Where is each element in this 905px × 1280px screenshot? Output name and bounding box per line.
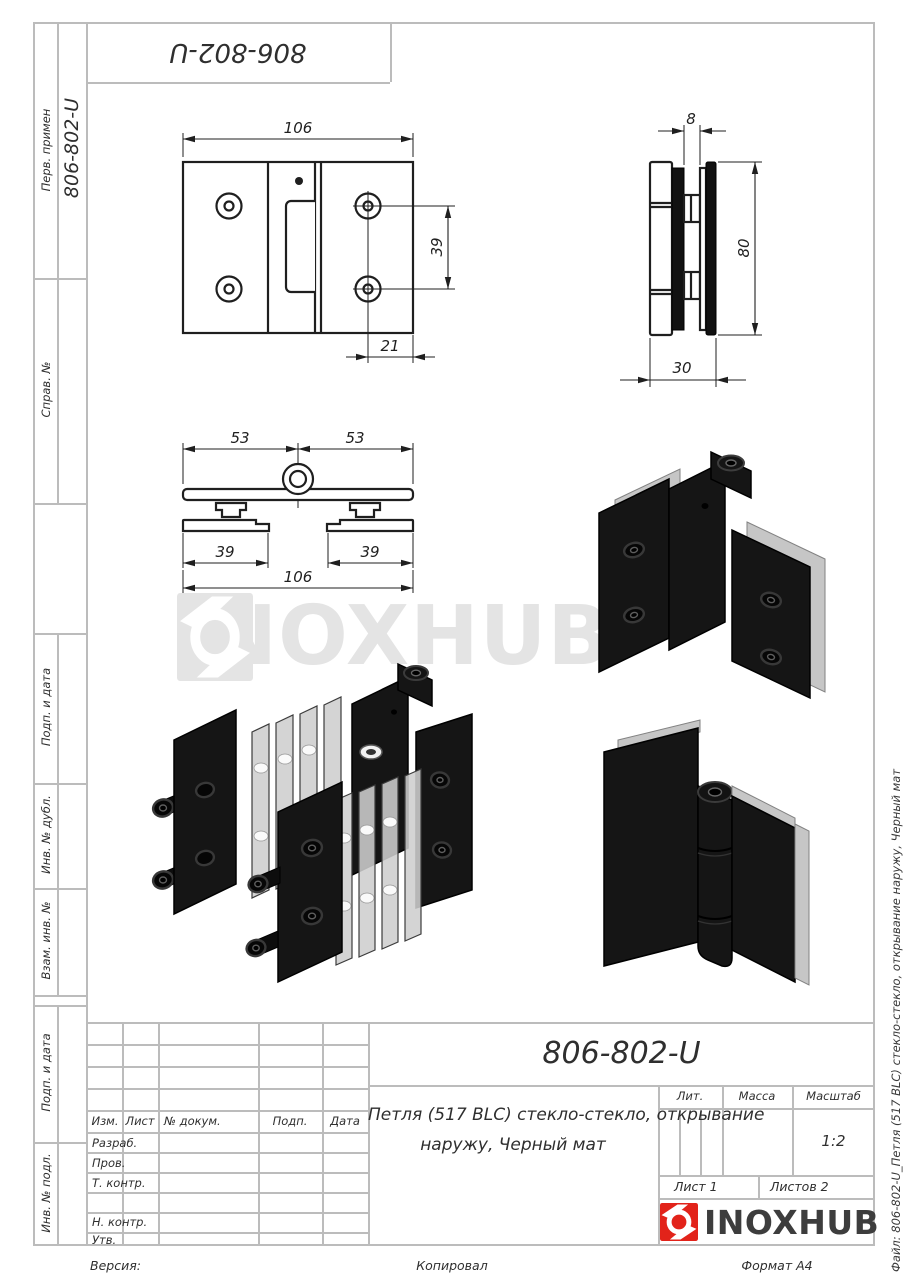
rev-header-data: Дата: [322, 1114, 368, 1128]
svg-text:80: 80: [735, 238, 753, 257]
sign-row-razrab: Разраб.: [92, 1136, 137, 1150]
svg-text:30: 30: [672, 359, 691, 377]
format-label: Формат A4: [737, 1258, 817, 1273]
sidebar-label-sprav-no: Справ. №: [35, 278, 57, 501]
sign-row-utv: Утв.: [92, 1233, 116, 1247]
svg-text:106: 106: [284, 119, 313, 137]
rev-header-izm: Изм.: [88, 1114, 122, 1128]
dim-80-right: 80: [718, 162, 762, 335]
sidebar-label-podp-data-2: Подп. и дата: [35, 1005, 57, 1140]
title-doc-number: 806-802-U: [368, 1022, 875, 1085]
iso-view-assembled: [575, 410, 885, 700]
svg-text:53: 53: [345, 429, 364, 447]
dim-39-right: 39: [428, 206, 451, 289]
lit-label: Лит.: [658, 1089, 722, 1103]
clamp-block-right: [350, 503, 380, 517]
rear-barrel: [698, 786, 732, 966]
top-stamp: 806-802-U: [86, 22, 390, 82]
scale-label: Масштаб: [792, 1089, 875, 1103]
logo-text: INOXHUB: [704, 1203, 879, 1242]
exploded-plate-far-left: [174, 710, 236, 914]
svg-text:8: 8: [686, 110, 696, 128]
svg-text:106: 106: [284, 568, 313, 586]
copied-label: Копировал: [402, 1258, 502, 1273]
dim-39-right: 39: [328, 533, 413, 568]
knuckle-notch: [286, 201, 315, 292]
inoxhub-logo: INOXHUB: [660, 1200, 873, 1244]
inoxhub-logo-icon: [660, 1203, 698, 1241]
exploded-screws-front: [245, 867, 280, 958]
dim-21-bottom: 21: [346, 335, 435, 363]
sheet-label: Лист 1: [674, 1179, 718, 1194]
side-view: 8 80 30: [600, 95, 880, 395]
bottom-plate-right: [327, 520, 413, 531]
rev-header-list: Лист: [122, 1114, 158, 1128]
scale-value: 1:2: [792, 1132, 875, 1150]
rear-plate-right: [732, 796, 795, 982]
part-description: Петля (517 BLC) стекло-стекло, открывани…: [368, 1100, 658, 1160]
gasket-strip-left: [672, 168, 684, 330]
rear-plate-left: [604, 728, 698, 966]
front-view: 106 39 21: [150, 105, 480, 385]
sign-row-tkontr: Т. контр.: [92, 1176, 146, 1190]
exploded-plate-front: [278, 782, 342, 982]
iso-center-leaf: [669, 461, 725, 650]
iso-view-exploded: [140, 640, 510, 1030]
clamp-block-left: [216, 503, 246, 517]
top-view: 53 53 39 39: [150, 420, 480, 610]
svg-text:53: 53: [230, 429, 249, 447]
svg-text:21: 21: [380, 337, 399, 355]
version-label: Версия:: [90, 1258, 141, 1273]
sidebar-label-podp-data-1: Подп. и дата: [35, 633, 57, 781]
bottom-plate-left: [183, 520, 269, 531]
part-description-line2: наружу, Черный мат: [368, 1130, 658, 1160]
sheets-label: Листов 2: [770, 1179, 829, 1194]
sidebar-label-vzam-inv: Взам. инв. №: [35, 888, 57, 993]
iso-view-rear: [580, 700, 890, 1020]
pin-dot: [295, 177, 303, 185]
dim-30-bottom: 30: [620, 338, 746, 387]
dim-106-top: 106: [183, 119, 413, 157]
sidebar-label-inv-dubl: Инв. № дубл.: [35, 783, 57, 886]
svg-text:39: 39: [215, 543, 234, 561]
sidebar-label-inv-podl: Инв. № подл.: [35, 1142, 57, 1244]
side-stamp: 806-802-U: [58, 100, 86, 196]
mass-label: Масса: [722, 1089, 792, 1103]
dim-53-right: 53: [298, 429, 413, 484]
dim-39-left: 39: [183, 533, 268, 568]
rev-header-podp: Подп.: [258, 1114, 322, 1128]
exploded-plate-far-right: [416, 714, 472, 908]
rev-header-dokum: № докум.: [164, 1114, 221, 1128]
exploded-washer: [360, 745, 382, 759]
dim-8-top: 8: [658, 110, 726, 165]
svg-text:39: 39: [428, 237, 446, 256]
drawing-sheet: INOXHUB: [0, 0, 905, 1280]
dim-53-left: 53: [183, 429, 298, 484]
plate-edge-right: [706, 162, 716, 335]
dim-106-bottom: 106: [183, 568, 413, 593]
part-description-line1: Петля (517 BLC) стекло-стекло, открывани…: [368, 1100, 658, 1130]
iso-plate-left: [599, 479, 669, 672]
sidebar-label-perv-primen: Перв. примен: [35, 24, 57, 276]
sign-row-nkontr: Н. контр.: [92, 1215, 147, 1229]
sign-row-prov: Пров.: [92, 1156, 125, 1170]
svg-text:39: 39: [360, 543, 379, 561]
